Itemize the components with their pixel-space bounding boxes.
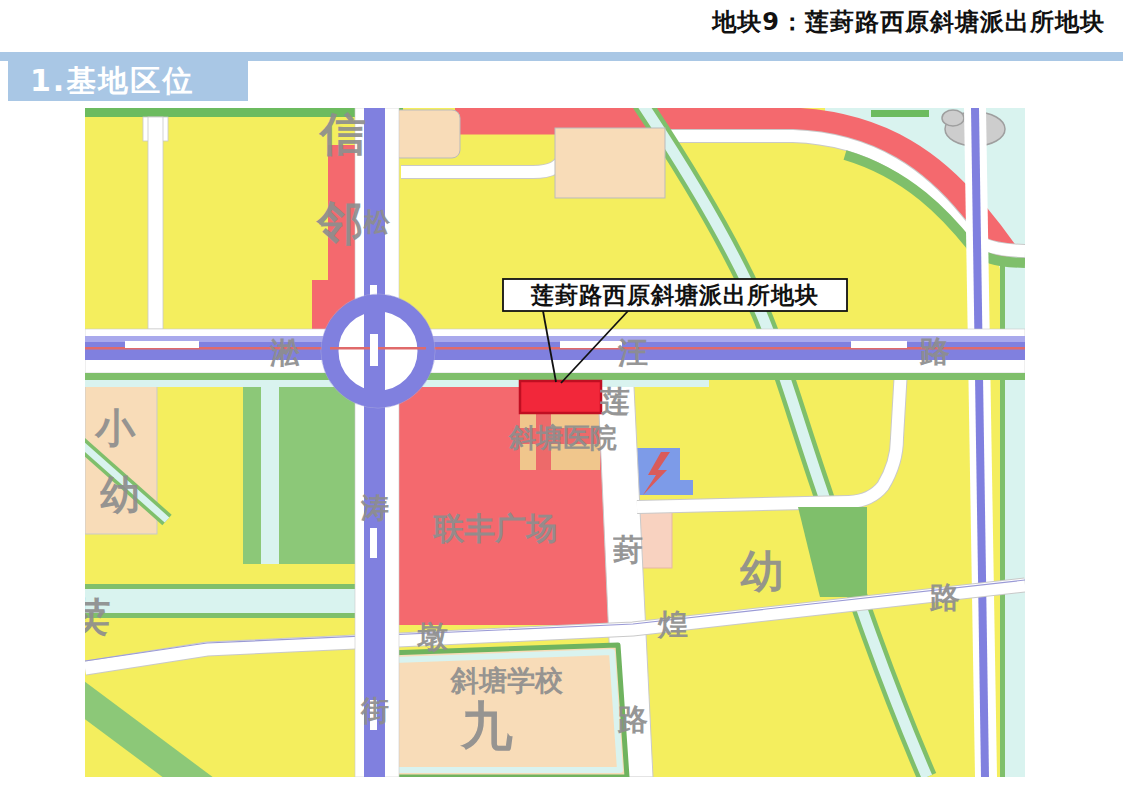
canal-band — [85, 589, 393, 613]
label-you-left: 幼 — [100, 472, 140, 518]
lane-topleft — [148, 117, 163, 329]
slide: 地块9：莲葑路西原斜塘派出所地块 1.基地区位 — [0, 0, 1123, 794]
label-song-small: 松 — [363, 207, 391, 237]
label-xin: 信 — [318, 108, 366, 161]
label-mai: 荬 — [85, 594, 111, 640]
location-map-svg: 信 邻 松 淞 汪 路 涛 街 莲 葑 路 墩 煌 路 斜塘医院 联丰广场 斜塘… — [85, 108, 1025, 777]
label-songtao-jie: 街 — [360, 694, 389, 727]
green-edge-right — [1000, 248, 1005, 777]
canal-vertical-left — [261, 384, 279, 564]
label-school: 斜塘学校 — [449, 664, 564, 697]
label-dunhuang-huang: 煌 — [657, 607, 688, 642]
callout-label: 莲葑路西原斜塘派出所地块 — [530, 282, 819, 308]
label-songwang-wang: 汪 — [617, 335, 648, 370]
highlight-parcel — [520, 381, 601, 413]
canal-band-edge — [85, 584, 393, 589]
canal-band-edge2 — [85, 613, 393, 618]
lane-dash — [125, 341, 199, 348]
label-lin: 邻 — [315, 196, 363, 250]
label-hospital: 斜塘医院 — [508, 422, 617, 453]
label-dunhuang-dun: 墩 — [416, 619, 448, 654]
roundabout — [321, 294, 435, 408]
lane-dash — [370, 528, 377, 558]
water-strip-right — [1005, 248, 1025, 777]
section-title-box: 1.基地区位 — [8, 61, 248, 101]
label-lianfeng-lu: 路 — [617, 702, 648, 737]
label-dunhuang-lu: 路 — [929, 580, 960, 615]
label-songwang-song: 淞 — [269, 335, 301, 370]
label-you-right: 幼 — [740, 546, 784, 597]
label-songtao-tao: 涛 — [360, 491, 389, 524]
label-lianfeng-lian: 莲 — [600, 384, 630, 419]
label-lianfeng-feng: 葑 — [613, 532, 643, 567]
lane-dash — [851, 341, 907, 348]
lane-dash — [560, 341, 622, 348]
label-jiu: 九 — [460, 696, 513, 756]
label-songwang-lu: 路 — [919, 334, 950, 369]
location-map: 信 邻 松 淞 汪 路 涛 街 莲 葑 路 墩 煌 路 斜塘医院 联丰广场 斜塘… — [85, 108, 1025, 777]
peach-block-top2 — [555, 128, 665, 198]
green-bar-topright — [871, 110, 929, 117]
page-title: 地块9：莲葑路西原斜塘派出所地块 — [712, 6, 1105, 38]
label-xiao: 小 — [94, 405, 136, 451]
section-title: 1.基地区位 — [8, 61, 194, 102]
peach-block-top1 — [392, 110, 460, 158]
label-plaza: 联丰广场 — [432, 510, 557, 546]
